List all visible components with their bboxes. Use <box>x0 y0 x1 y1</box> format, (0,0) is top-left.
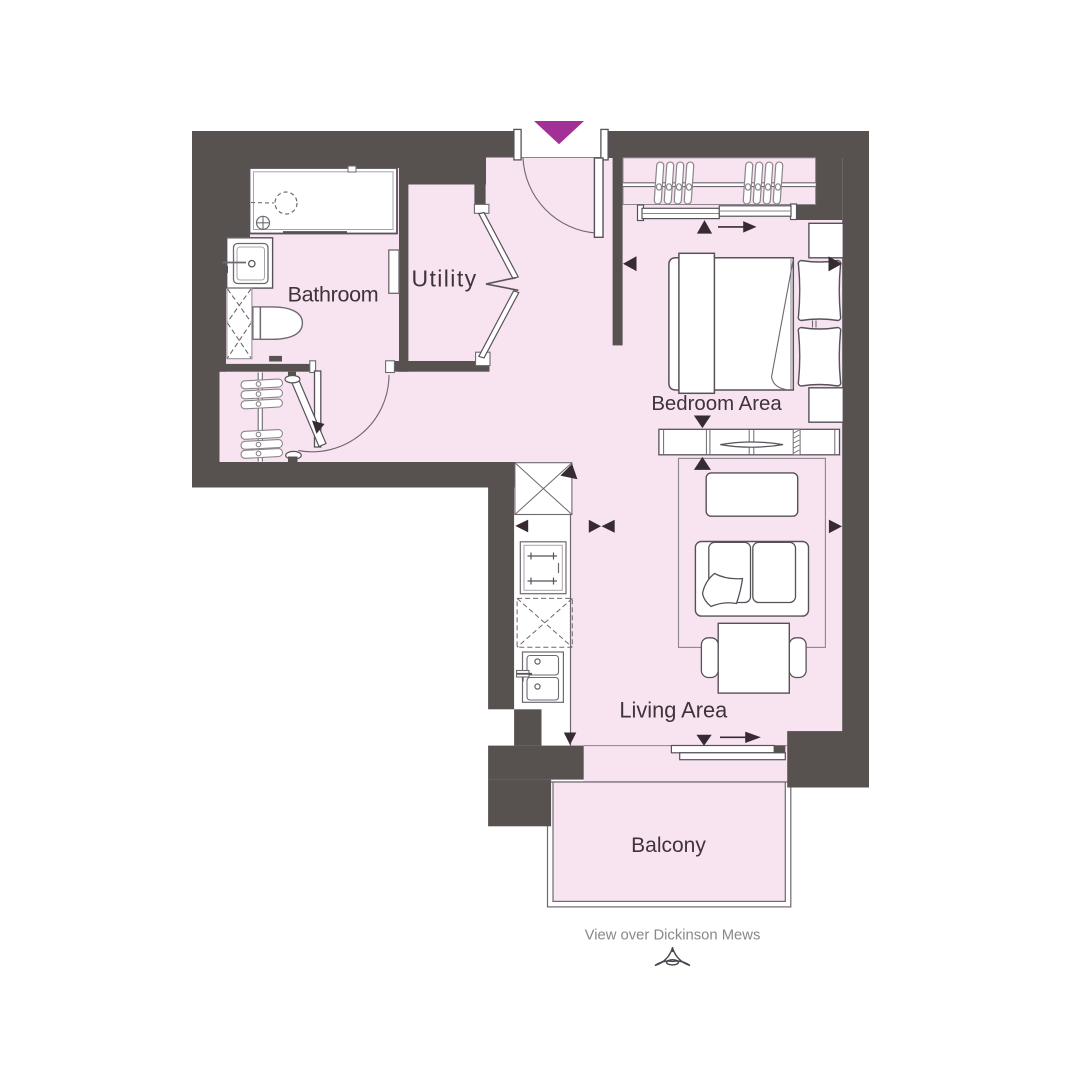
svg-text:Balcony: Balcony <box>631 834 706 857</box>
svg-text:View over Dickinson Mews: View over Dickinson Mews <box>585 928 761 944</box>
svg-text:Bedroom Area: Bedroom Area <box>651 393 782 415</box>
svg-text:Utility: Utility <box>411 265 477 291</box>
svg-text:Bathroom: Bathroom <box>288 283 379 307</box>
svg-text:Living Area: Living Area <box>619 697 728 722</box>
